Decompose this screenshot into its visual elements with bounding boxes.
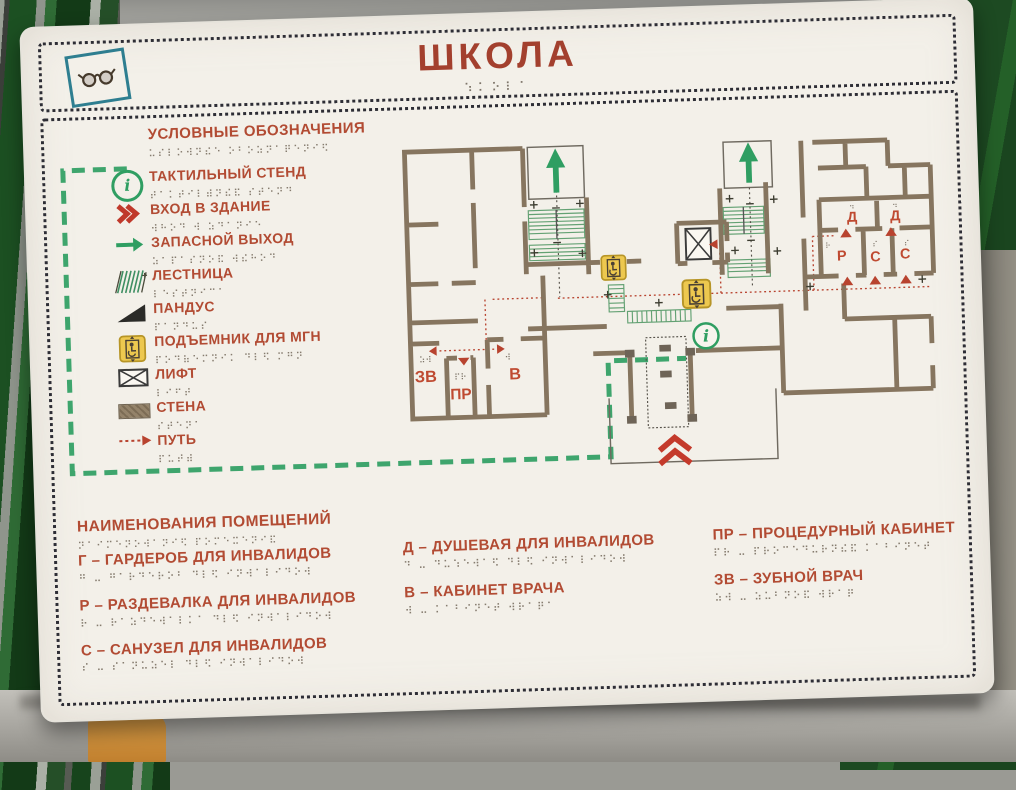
floor-plan: i ЗВ ПР В Д Д Р С С ⠵⠺ ⠏⠗ ⠺ ⠙ ⠙ ⠗ ⠎ ⠎ xyxy=(380,109,967,497)
legend-label: ВХОД В ЗДАНИЕ xyxy=(150,197,271,217)
room-label: ЗВ – ЗУБНОЙ ВРАЧ xyxy=(714,565,957,588)
room-label: В – КАБИНЕТ ВРАЧА xyxy=(404,577,656,601)
plan-braille-r: ⠗ xyxy=(825,241,831,250)
plan-walls xyxy=(404,136,937,426)
orange-object xyxy=(88,714,166,762)
elevator-symbol xyxy=(685,228,711,259)
room-item-doctor-office: В – КАБИНЕТ ВРАЧА ⠺ ⠤ ⠅⠁⠃⠊⠝⠑⠞ ⠺⠗⠁⠟⠁ xyxy=(404,577,657,619)
exit-arrow-icon xyxy=(114,235,145,254)
room-label: С – САНУЗЕЛ ДЛЯ ИНВАЛИДОВ xyxy=(81,634,358,658)
wall-icon xyxy=(118,403,150,419)
legend-label: ЗАПАСНОЙ ВЫХОД xyxy=(151,230,294,250)
wheelchair-lift-icon xyxy=(118,334,147,363)
legend-label: ЛЕСТНИЦА xyxy=(152,265,234,284)
plan-room-label-v: В xyxy=(509,365,522,383)
room-braille: ⠗ ⠤ ⠗⠁⠵⠙⠑⠺⠁⠇⠅⠁ ⠙⠇⠫ ⠊⠝⠺⠁⠇⠊⠙⠕⠺ xyxy=(80,610,334,630)
room-braille: ⠙ ⠤ ⠙⠥⠱⠑⠺⠁⠫ ⠙⠇⠫ ⠊⠝⠺⠁⠇⠊⠙⠕⠺ xyxy=(403,553,628,572)
ramp-icon xyxy=(115,301,148,324)
plan-braille-s2: ⠎ xyxy=(904,239,910,248)
plan-braille-s1: ⠎ xyxy=(872,240,878,249)
plan-braille-d2: ⠙ xyxy=(892,203,898,212)
legend-label: СТЕНА xyxy=(156,397,206,415)
plan-braille-d1: ⠙ xyxy=(849,204,855,213)
info-icon: i xyxy=(111,169,144,202)
room-item-changing-room: Р – РАЗДЕВАЛКА ДЛЯ ИНВАЛИДОВ ⠗ ⠤ ⠗⠁⠵⠙⠑⠺⠁… xyxy=(79,590,357,632)
legend-label: ПАНДУС xyxy=(153,298,215,316)
plan-braille-v: ⠺ xyxy=(505,353,512,363)
plan-room-label-s1: С xyxy=(870,249,881,265)
legend-label: ЛИФТ xyxy=(155,365,197,382)
legend-braille: ⠏⠥⠞⠾ xyxy=(158,454,196,466)
room-braille: ⠺ ⠤ ⠅⠁⠃⠊⠝⠑⠞ ⠺⠗⠁⠟⠁ xyxy=(405,600,557,617)
legend-label: ПУТЬ xyxy=(157,431,196,448)
tactile-stand-marker: i xyxy=(693,323,719,349)
entrance-chevrons-icon xyxy=(113,202,144,225)
room-item-dentist: ЗВ – ЗУБНОЙ ВРАЧ ⠵⠺ ⠤ ⠵⠥⠃⠝⠕⠯ ⠺⠗⠁⠟ xyxy=(714,565,957,606)
svg-text:i: i xyxy=(703,326,710,345)
room-item-shower: Д – ДУШЕВАЯ ДЛЯ ИНВАЛИДОВ ⠙ ⠤ ⠙⠥⠱⠑⠺⠁⠫ ⠙⠇… xyxy=(403,532,656,574)
plan-braille-zv: ⠵⠺ xyxy=(419,356,432,366)
room-braille: ⠎ ⠤ ⠎⠁⠝⠥⠵⠑⠇ ⠙⠇⠫ ⠊⠝⠺⠁⠇⠊⠙⠕⠺ xyxy=(81,656,306,675)
room-item-procedure-room: ПР – ПРОЦЕДУРНЫЙ КАБИНЕТ ⠏⠗ ⠤ ⠏⠗⠕⠉⠑⠙⠥⠗⠝⠮… xyxy=(712,520,955,561)
plan-room-label-pr: ПР xyxy=(450,386,472,404)
legend: УСЛОВНЫЕ ОБОЗНАЧЕНИЯ ⠥⠎⠇⠕⠺⠝⠮⠑ ⠕⠃⠕⠵⠝⠁⠟⠑⠝⠊… xyxy=(103,118,414,466)
plan-braille-pr: ⠏⠗ xyxy=(454,373,467,383)
stairs-icon xyxy=(113,268,148,295)
elevator-icon xyxy=(117,367,150,388)
plan-vestibule-details xyxy=(625,344,697,424)
entrance-chevrons-marker xyxy=(659,437,691,464)
room-braille: ⠵⠺ ⠤ ⠵⠥⠃⠝⠕⠯ ⠺⠗⠁⠟ xyxy=(714,588,856,604)
room-item-cloakroom: Г – ГАРДЕРОБ ДЛЯ ИНВАЛИДОВ ⠛ ⠤ ⠛⠁⠗⠙⠑⠗⠕⠃ … xyxy=(78,545,356,587)
plan-room-label-s2: С xyxy=(900,246,911,262)
emergency-exit-arrows xyxy=(546,142,759,193)
room-braille: ⠏⠗ ⠤ ⠏⠗⠕⠉⠑⠙⠥⠗⠝⠮⠯ ⠅⠁⠃⠊⠝⠑⠞ xyxy=(713,540,933,559)
plan-thin-outlines xyxy=(527,140,781,466)
room-item-wc: С – САНУЗЕЛ ДЛЯ ИНВАЛИДОВ ⠎ ⠤ ⠎⠁⠝⠥⠵⠑⠇ ⠙⠇… xyxy=(81,634,359,676)
path-icon xyxy=(117,433,153,448)
room-braille: ⠛ ⠤ ⠛⠁⠗⠙⠑⠗⠕⠃ ⠙⠇⠫ ⠊⠝⠺⠁⠇⠊⠙⠕⠺ xyxy=(78,566,313,585)
tactile-sign-board: ШКОЛА ⠱⠅⠕⠇⠁ УСЛОВНЫЕ ОБОЗНАЧЕНИЯ ⠥⠎⠇⠕⠺⠝⠮… xyxy=(19,0,994,723)
title-braille: ⠱⠅⠕⠇⠁ xyxy=(464,79,533,95)
sign-main-area: УСЛОВНЫЕ ОБОЗНАЧЕНИЯ ⠥⠎⠇⠕⠺⠝⠮⠑ ⠕⠃⠕⠵⠝⠁⠟⠑⠝⠊… xyxy=(40,90,976,707)
plan-room-label-zv: ЗВ xyxy=(415,368,438,387)
plan-room-label-r: Р xyxy=(837,248,847,264)
